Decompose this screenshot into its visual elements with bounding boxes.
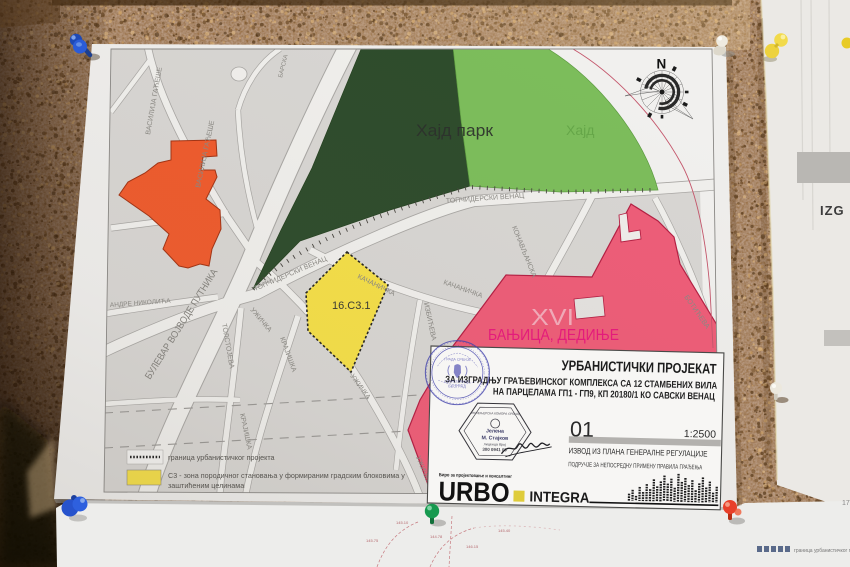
- svg-text:145.10: 145.10: [396, 520, 409, 525]
- svg-text:146.15: 146.15: [466, 544, 479, 549]
- svg-text:URBO: URBO: [438, 476, 510, 508]
- svg-text:БЕОГРАД: БЕОГРАД: [448, 384, 466, 388]
- svg-text:17: 17: [842, 500, 850, 507]
- svg-text:IZG: IZG: [820, 203, 845, 218]
- svg-text:Јелена: Јелена: [486, 428, 504, 434]
- svg-text:145.75: 145.75: [366, 538, 379, 543]
- svg-text:ГРАДА СРБИЈЕ: ГРАДА СРБИЈЕ: [444, 357, 471, 362]
- svg-text:СЕКРЕТАРИЈАТ: СЕКРЕТАРИЈАТ: [444, 379, 470, 384]
- svg-text:граница урбанистичког пр: граница урбанистичког пр: [794, 548, 850, 554]
- svg-text:INTEGRA: INTEGRA: [529, 489, 590, 506]
- svg-text:1:2500: 1:2500: [684, 428, 717, 441]
- svg-text:145.40: 145.40: [498, 528, 511, 533]
- svg-text:144.78: 144.78: [430, 534, 443, 539]
- svg-text:М. Стајков: М. Стајков: [481, 435, 508, 442]
